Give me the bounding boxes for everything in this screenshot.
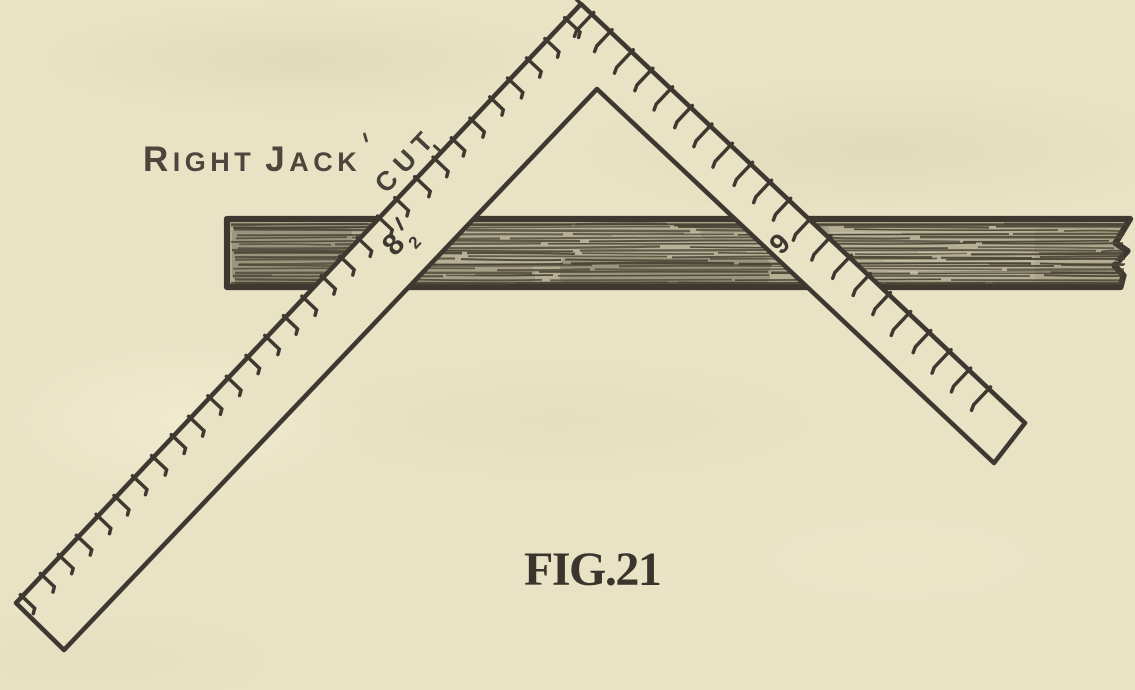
svg-text:FIG.21: FIG.21 xyxy=(524,543,660,596)
